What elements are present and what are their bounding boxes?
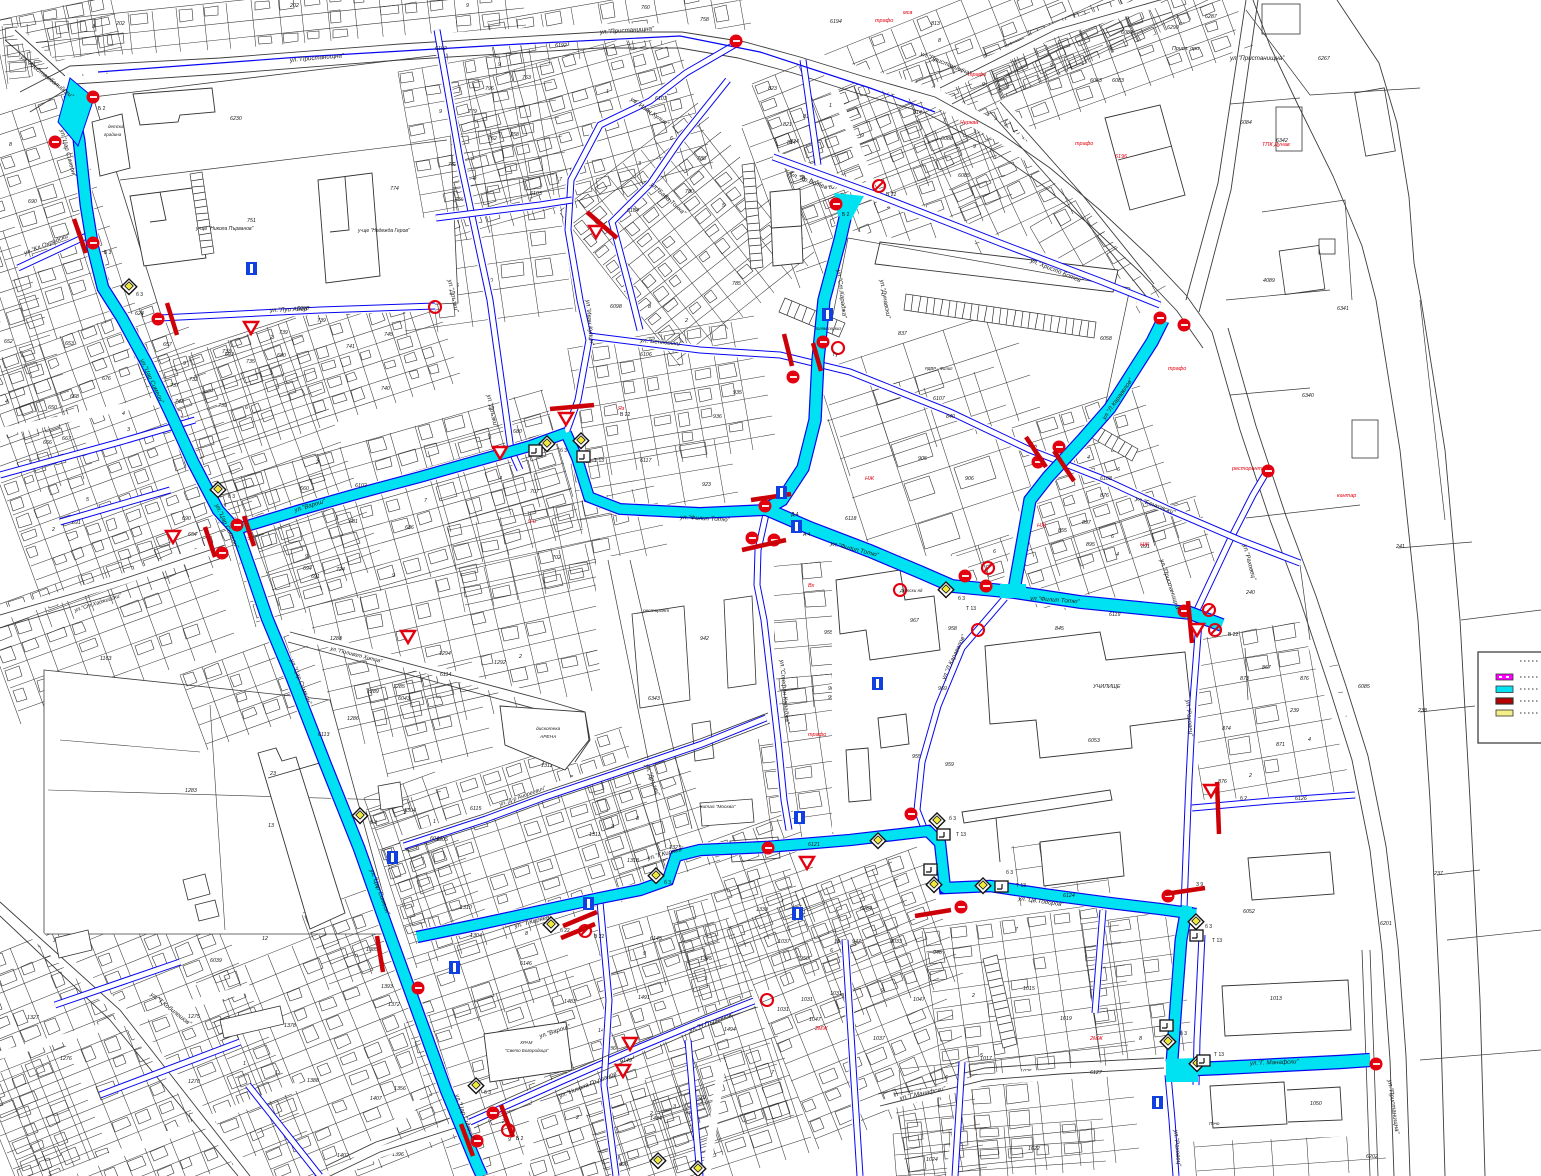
svg-text:Т 13: Т 13 <box>1016 883 1026 889</box>
svg-text:1311: 1311 <box>589 832 600 838</box>
svg-text:739: 739 <box>317 318 326 324</box>
svg-text:1288: 1288 <box>330 636 342 642</box>
svg-text:6146: 6146 <box>520 961 532 967</box>
svg-text:905: 905 <box>918 456 927 462</box>
svg-text:9: 9 <box>508 1137 511 1143</box>
svg-text:6230: 6230 <box>230 116 242 122</box>
svg-text:845: 845 <box>1055 626 1064 632</box>
svg-text:1388: 1388 <box>307 1078 319 1084</box>
svg-text:2МЖ: 2МЖ <box>1089 1036 1104 1042</box>
svg-text:8: 8 <box>938 38 941 44</box>
svg-text:В 22: В 22 <box>886 192 897 198</box>
svg-text:б 3: б 3 <box>958 596 965 602</box>
svg-text:6104: 6104 <box>627 208 639 214</box>
svg-text:681: 681 <box>349 519 358 525</box>
svg-text:Детски яд: Детски яд <box>899 588 923 593</box>
svg-text:6085: 6085 <box>958 173 970 179</box>
svg-text:1: 1 <box>606 89 609 95</box>
svg-text:1283: 1283 <box>185 788 197 794</box>
svg-text:763: 763 <box>522 75 531 81</box>
svg-text:1047: 1047 <box>809 1017 822 1023</box>
svg-text:6: 6 <box>830 948 833 954</box>
svg-text:1385: 1385 <box>366 947 378 953</box>
svg-text:239: 239 <box>1289 708 1299 714</box>
svg-text:1491: 1491 <box>638 995 650 1001</box>
svg-text:1318: 1318 <box>627 858 639 864</box>
svg-text:1270: 1270 <box>188 1079 200 1085</box>
svg-text:1292: 1292 <box>494 660 506 666</box>
svg-text:мсв: мсв <box>903 10 912 16</box>
svg-text:б 3: б 3 <box>560 448 567 454</box>
svg-text:АРЕНА: АРЕНА <box>539 734 556 740</box>
svg-text:745: 745 <box>384 332 393 338</box>
svg-text:680: 680 <box>513 429 522 435</box>
svg-text:739: 739 <box>218 403 227 409</box>
svg-text:202: 202 <box>289 3 299 9</box>
svg-text:ул.”Пристанищна”: ул.”Пристанищна” <box>1229 55 1285 62</box>
svg-text:6088: 6088 <box>941 136 953 142</box>
svg-text:1: 1 <box>275 1070 278 1076</box>
svg-text:9: 9 <box>973 144 976 150</box>
svg-text:Д 4: Д 4 <box>791 512 799 518</box>
svg-text:6103: 6103 <box>530 191 542 197</box>
svg-text:3: 3 <box>673 1104 676 1110</box>
svg-text:758: 758 <box>700 17 709 23</box>
svg-text:238: 238 <box>1417 708 1427 714</box>
svg-text:ТПК Дунав: ТПК Дунав <box>1262 142 1290 148</box>
svg-text:955: 955 <box>912 754 921 760</box>
svg-text:652: 652 <box>4 339 13 345</box>
svg-text:935: 935 <box>733 390 742 396</box>
svg-text:739: 739 <box>279 330 288 336</box>
svg-text:876: 876 <box>1300 676 1309 682</box>
svg-text:ресторант: ресторант <box>1231 466 1263 472</box>
svg-text:967: 967 <box>910 618 920 624</box>
svg-text:874: 874 <box>1222 726 1231 732</box>
svg-text:9: 9 <box>392 573 395 579</box>
svg-text:2: 2 <box>1248 773 1252 779</box>
svg-text:732: 732 <box>189 377 198 383</box>
svg-text:3: 3 <box>127 427 130 433</box>
svg-text:6117: 6117 <box>640 458 652 464</box>
svg-text:735: 735 <box>246 359 255 365</box>
svg-text:653: 653 <box>65 341 74 347</box>
svg-text:946: 946 <box>933 950 942 956</box>
svg-text:680: 680 <box>277 353 286 359</box>
svg-text:6267: 6267 <box>1318 56 1331 62</box>
svg-text:1310: 1310 <box>460 905 472 911</box>
svg-text:б 2: б 2 <box>1240 796 1247 802</box>
svg-text:б 3: б 3 <box>664 880 671 886</box>
svg-text:9: 9 <box>183 361 186 367</box>
svg-text:1019: 1019 <box>1060 1016 1072 1022</box>
svg-text:1: 1 <box>433 819 436 825</box>
svg-text:6284: 6284 <box>860 906 872 912</box>
svg-text:б 22: б 22 <box>560 928 570 934</box>
svg-text:6196: 6196 <box>1115 154 1128 160</box>
svg-text:6053: 6053 <box>1088 738 1100 744</box>
svg-text:657: 657 <box>163 342 173 348</box>
svg-text:трафо: трафо <box>1075 141 1093 147</box>
svg-text:6202: 6202 <box>1366 1154 1378 1160</box>
svg-text:821: 821 <box>783 122 792 128</box>
svg-text:1031: 1031 <box>777 1007 789 1013</box>
svg-text:2: 2 <box>971 993 975 999</box>
svg-text:9-и: 9-и <box>528 519 536 525</box>
svg-text:1393: 1393 <box>381 984 393 990</box>
svg-text:6126: 6126 <box>1295 796 1307 802</box>
svg-text:б 3: б 3 <box>1006 870 1013 876</box>
svg-text:8: 8 <box>648 304 651 310</box>
svg-text:690: 690 <box>28 199 37 205</box>
svg-text:6114: 6114 <box>440 672 451 678</box>
svg-text:6108: 6108 <box>1100 476 1112 482</box>
svg-text:4: 4 <box>1087 455 1090 461</box>
svg-text:4089: 4089 <box>1263 278 1275 284</box>
svg-text:6343: 6343 <box>648 696 660 702</box>
svg-text:детска: детска <box>108 124 124 129</box>
svg-text:969: 969 <box>938 686 947 692</box>
svg-text:НЖ: НЖ <box>1037 523 1047 529</box>
svg-text:Б 2: Б 2 <box>516 1136 524 1142</box>
svg-text:6106: 6106 <box>640 352 652 358</box>
svg-text:”Свето Богородица”: ”Свето Богородица” <box>505 1048 549 1053</box>
svg-text:6118: 6118 <box>845 516 856 522</box>
svg-text:873: 873 <box>1240 676 1249 682</box>
svg-text:б 3: б 3 <box>228 494 235 500</box>
svg-text:трафо: трафо <box>968 72 986 78</box>
svg-text:702: 702 <box>552 555 561 561</box>
svg-text:6: 6 <box>1111 534 1114 540</box>
svg-text:23: 23 <box>269 771 276 777</box>
svg-text:1037: 1037 <box>778 939 791 945</box>
svg-text:676: 676 <box>102 376 111 382</box>
svg-text:4: 4 <box>5 399 8 405</box>
svg-text:4: 4 <box>122 411 125 417</box>
svg-text:трафо: трафо <box>875 18 893 24</box>
svg-text:6: 6 <box>473 176 476 182</box>
svg-text:1: 1 <box>829 103 832 109</box>
svg-text:1013: 1013 <box>1270 996 1282 1002</box>
svg-text:6: 6 <box>245 405 248 411</box>
svg-text:1050: 1050 <box>1310 1101 1322 1107</box>
svg-text:6121: 6121 <box>808 842 820 848</box>
svg-text:624: 624 <box>135 311 144 317</box>
svg-text:814: 814 <box>787 140 796 146</box>
svg-text:6: 6 <box>993 549 996 555</box>
svg-text:1407: 1407 <box>370 1096 383 1102</box>
svg-text:градина: градина <box>104 132 122 137</box>
svg-text:751: 751 <box>247 218 256 224</box>
svg-text:5: 5 <box>86 497 89 503</box>
svg-text:958: 958 <box>948 626 957 632</box>
svg-text:897: 897 <box>1082 520 1092 526</box>
svg-text:6194: 6194 <box>830 19 842 25</box>
svg-text:1345: 1345 <box>700 956 712 962</box>
svg-text:871: 871 <box>1276 742 1285 748</box>
svg-text:Вх: Вх <box>808 583 814 589</box>
svg-text:2: 2 <box>315 460 319 466</box>
svg-text:1378: 1378 <box>284 1023 296 1029</box>
svg-text:9: 9 <box>498 62 501 68</box>
svg-text:ресторант: ресторант <box>642 609 669 614</box>
svg-text:667: 667 <box>62 436 72 442</box>
svg-text:9: 9 <box>643 951 646 957</box>
svg-text:3: 3 <box>638 161 641 167</box>
svg-text:867: 867 <box>1262 665 1272 671</box>
svg-text:б 3: б 3 <box>370 820 377 826</box>
svg-text:УЧИЛИЩЕ: УЧИЛИЩЕ <box>1092 684 1121 690</box>
svg-text:1017: 1017 <box>980 1056 993 1062</box>
svg-text:6119: 6119 <box>1109 612 1120 618</box>
svg-text:733: 733 <box>222 349 231 355</box>
svg-text:1494: 1494 <box>724 1027 736 1033</box>
svg-text:923: 923 <box>702 482 711 488</box>
svg-text:740: 740 <box>381 386 390 392</box>
svg-text:6052: 6052 <box>1243 909 1255 915</box>
svg-text:1031: 1031 <box>830 991 842 997</box>
svg-text:743: 743 <box>175 399 184 405</box>
svg-text:у-ще ”Никола Първанов”: у-ще ”Никола Първанов” <box>195 226 254 232</box>
svg-text:трафо: трафо <box>808 732 826 738</box>
svg-text:1294: 1294 <box>439 651 451 657</box>
svg-text:1286: 1286 <box>347 716 359 722</box>
svg-text:6: 6 <box>1117 467 1120 473</box>
svg-text:9: 9 <box>439 109 442 115</box>
svg-text:895: 895 <box>1086 542 1095 548</box>
svg-text:6043: 6043 <box>398 696 410 702</box>
svg-text:2: 2 <box>518 654 522 660</box>
svg-text:Т 13: Т 13 <box>956 832 966 838</box>
svg-text:1031: 1031 <box>801 997 813 1003</box>
svg-text:1015: 1015 <box>1023 986 1035 992</box>
svg-text:9: 9 <box>466 3 469 9</box>
svg-text:855: 855 <box>1058 528 1067 534</box>
svg-text:760: 760 <box>641 5 650 11</box>
svg-text:Гу: Гу <box>833 352 838 358</box>
svg-text:4: 4 <box>1116 552 1119 558</box>
svg-text:6149: 6149 <box>620 1058 632 1064</box>
svg-text:691: 691 <box>311 574 320 580</box>
svg-text:741: 741 <box>346 344 355 350</box>
svg-text:6098: 6098 <box>610 304 622 310</box>
svg-text:Б 2: Б 2 <box>98 106 106 112</box>
svg-text:813: 813 <box>931 21 940 27</box>
svg-text:13: 13 <box>268 823 274 829</box>
svg-text:2: 2 <box>684 318 688 324</box>
svg-text:8: 8 <box>1139 1036 1142 1042</box>
svg-text:Т 13: Т 13 <box>1212 938 1222 944</box>
svg-text:840: 840 <box>946 414 955 420</box>
svg-text:В 22: В 22 <box>620 412 631 418</box>
svg-text:6102: 6102 <box>355 483 367 489</box>
svg-text:6107: 6107 <box>933 396 946 402</box>
svg-text:читал.”Москва”: читал.”Москва” <box>700 804 736 810</box>
svg-text:1037: 1037 <box>873 1036 886 1042</box>
svg-text:785: 785 <box>732 281 741 287</box>
svg-text:8: 8 <box>525 931 528 937</box>
svg-text:6113: 6113 <box>318 732 329 738</box>
svg-text:В 22: В 22 <box>594 934 605 940</box>
svg-text:1276: 1276 <box>60 1056 72 1062</box>
svg-text:кантар: кантар <box>1337 493 1356 499</box>
svg-text:6085: 6085 <box>1358 684 1370 690</box>
svg-text:774: 774 <box>390 186 399 192</box>
svg-text:837: 837 <box>898 331 908 337</box>
svg-text:936: 936 <box>713 414 722 420</box>
svg-text:906: 906 <box>965 476 974 482</box>
svg-text:686: 686 <box>405 525 414 531</box>
svg-text:758: 758 <box>510 132 519 138</box>
svg-text:1163: 1163 <box>100 656 111 662</box>
svg-text:6039: 6039 <box>210 958 222 964</box>
svg-text:голям сервиз: голям сервиз <box>815 326 841 331</box>
svg-text:788: 788 <box>697 156 706 162</box>
svg-text:5: 5 <box>722 203 725 209</box>
svg-text:240: 240 <box>1245 590 1255 596</box>
svg-text:б 3: б 3 <box>1205 924 1212 930</box>
svg-text:6192: 6192 <box>555 43 567 49</box>
svg-text:1304: 1304 <box>470 933 482 939</box>
svg-text:796: 796 <box>485 86 494 92</box>
svg-text:950: 950 <box>800 956 809 962</box>
svg-text:6058: 6058 <box>1100 336 1112 342</box>
svg-text:б 3: б 3 <box>484 1090 491 1096</box>
svg-text:Т 13: Т 13 <box>594 458 604 464</box>
svg-text:9: 9 <box>861 133 864 139</box>
svg-text:1047: 1047 <box>913 997 926 1003</box>
svg-text:6340: 6340 <box>1302 393 1314 399</box>
svg-text:дискотека: дискотека <box>536 726 561 732</box>
svg-text:650: 650 <box>48 405 57 411</box>
svg-text:241: 241 <box>1395 544 1405 550</box>
svg-text:737: 737 <box>170 383 180 389</box>
svg-text:6124: 6124 <box>1063 893 1075 899</box>
svg-text:1372: 1372 <box>388 1002 400 1008</box>
svg-text:НЖ: НЖ <box>1140 542 1150 548</box>
svg-text:8: 8 <box>636 816 639 822</box>
svg-text:6115: 6115 <box>470 806 481 812</box>
svg-text:6290: 6290 <box>1167 25 1179 31</box>
svg-text:2: 2 <box>575 1115 579 1121</box>
svg-text:6127: 6127 <box>1090 1070 1103 1076</box>
svg-text:Т 13: Т 13 <box>966 606 976 612</box>
svg-text:6201: 6201 <box>1380 921 1392 927</box>
svg-text:б 3: б 3 <box>949 816 956 822</box>
svg-text:6044: 6044 <box>430 836 442 842</box>
svg-text:2: 2 <box>403 810 407 816</box>
svg-text:В 22: В 22 <box>1228 632 1239 638</box>
svg-text:942: 942 <box>700 636 709 642</box>
svg-text:8: 8 <box>9 142 12 148</box>
svg-text:959: 959 <box>945 762 954 768</box>
svg-text:4: 4 <box>1308 737 1311 743</box>
svg-text:2: 2 <box>51 527 55 533</box>
svg-text:НЖ: НЖ <box>865 476 875 482</box>
svg-text:З 9: З 9 <box>1196 882 1203 888</box>
svg-text:1: 1 <box>243 1061 246 1067</box>
svg-text:1327: 1327 <box>27 1015 40 1021</box>
svg-text:876: 876 <box>1100 493 1109 499</box>
svg-text:780: 780 <box>685 189 694 195</box>
svg-text:690: 690 <box>182 516 191 522</box>
svg-text:б 3: б 3 <box>1180 1031 1187 1037</box>
svg-text:6084: 6084 <box>1240 120 1252 126</box>
svg-text:Присп. ори: Присп. ори <box>1172 46 1199 52</box>
svg-text:668: 668 <box>70 394 79 400</box>
svg-text:Яз: Яз <box>617 406 625 412</box>
svg-text:6083: 6083 <box>1112 78 1124 84</box>
svg-text:2МЖ: 2МЖ <box>814 1026 829 1032</box>
svg-text:759: 759 <box>455 197 464 203</box>
svg-text:762: 762 <box>488 136 497 142</box>
svg-text:6: 6 <box>670 136 673 142</box>
svg-text:9: 9 <box>1050 63 1053 69</box>
svg-text:1483: 1483 <box>564 999 576 1005</box>
svg-text:Печо: Печо <box>1209 1121 1220 1126</box>
svg-text:823: 823 <box>768 86 777 92</box>
svg-text:1356: 1356 <box>394 1086 406 1092</box>
svg-text:6287: 6287 <box>1205 14 1218 20</box>
svg-text:237: 237 <box>1433 871 1444 877</box>
svg-text:6145: 6145 <box>650 936 662 942</box>
svg-text:6192: 6192 <box>435 46 447 52</box>
svg-text:б 3: б 3 <box>136 292 143 298</box>
svg-text:6103: 6103 <box>655 96 667 102</box>
svg-text:724: 724 <box>336 567 345 573</box>
svg-text:у-ще ”Надежда Геров”: у-ще ”Надежда Геров” <box>357 228 410 234</box>
svg-text:А 4: А 4 <box>803 532 811 538</box>
svg-text:666: 666 <box>43 440 52 446</box>
svg-text:6341: 6341 <box>1337 306 1349 312</box>
svg-text:955: 955 <box>824 630 833 636</box>
svg-text:ХРАМ: ХРАМ <box>519 1040 533 1045</box>
svg-text:РДВР - Филип: РДВР - Филип <box>925 366 953 371</box>
svg-text:Б 3: Б 3 <box>104 250 112 256</box>
svg-text:9: 9 <box>305 554 308 560</box>
svg-text:6098: 6098 <box>297 306 309 312</box>
svg-text:12: 12 <box>262 936 268 942</box>
svg-text:947: 947 <box>852 939 862 945</box>
svg-text:Черква: Черква <box>960 120 978 126</box>
svg-text:Б 2: Б 2 <box>842 212 850 218</box>
svg-text:трафо: трафо <box>1168 366 1186 372</box>
svg-text:Т 13: Т 13 <box>1214 1052 1224 1058</box>
svg-text:6063: 6063 <box>1090 78 1102 84</box>
svg-text:1484: 1484 <box>650 1116 662 1122</box>
